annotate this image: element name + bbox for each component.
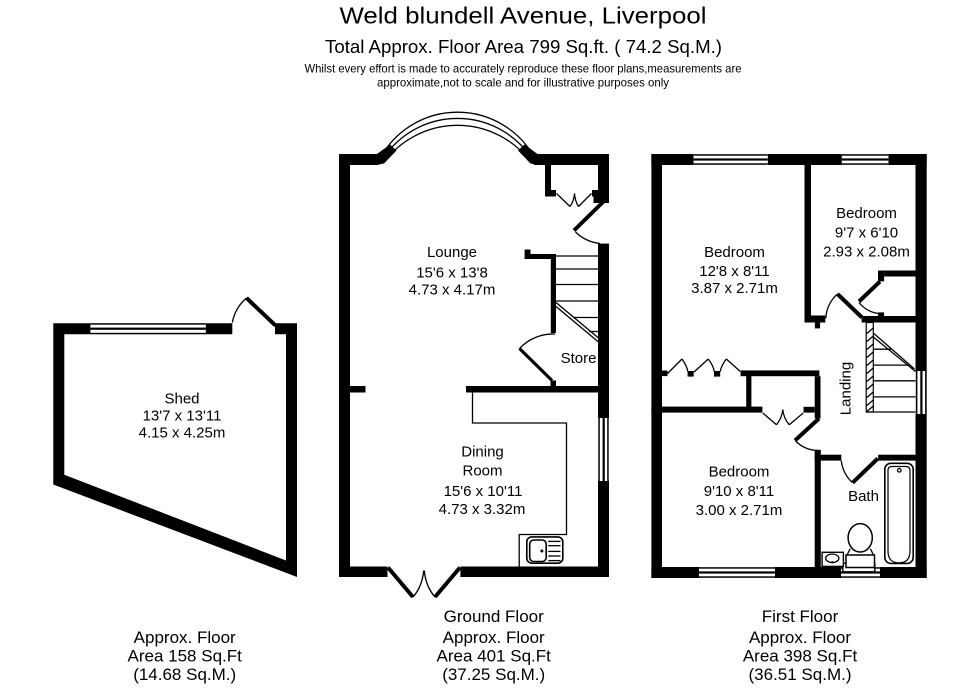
svg-text:2.93 x 2.08m: 2.93 x 2.08m <box>823 243 910 260</box>
svg-text:Approx. Floor: Approx. Floor <box>749 628 851 647</box>
svg-text:Bedroom: Bedroom <box>836 205 897 222</box>
svg-text:9'10 x 8'11: 9'10 x 8'11 <box>704 483 775 500</box>
svg-text:15'6 x 10'11: 15'6 x 10'11 <box>444 483 523 500</box>
svg-text:Lounge: Lounge <box>427 244 477 261</box>
svg-text:12'8 x 8'11: 12'8 x 8'11 <box>699 263 770 280</box>
svg-text:(14.68 Sq.M.): (14.68 Sq.M.) <box>133 665 236 684</box>
svg-text:13'7 x 13'11: 13'7 x 13'11 <box>143 408 222 425</box>
svg-text:Bedroom: Bedroom <box>704 244 765 261</box>
svg-text:4.15 x 4.25m: 4.15 x 4.25m <box>139 425 226 442</box>
svg-text:Landing: Landing <box>838 362 855 415</box>
svg-text:Approx. Floor: Approx. Floor <box>134 628 236 647</box>
svg-text:4.73 x 3.32m: 4.73 x 3.32m <box>439 501 526 518</box>
svg-text:Dining: Dining <box>461 443 504 460</box>
svg-text:Ground Floor: Ground Floor <box>444 607 544 626</box>
svg-text:Room: Room <box>462 463 502 480</box>
svg-text:Shed: Shed <box>164 390 199 407</box>
svg-text:4.73 x 4.17m: 4.73 x 4.17m <box>409 281 496 298</box>
svg-text:Total Approx. Floor Area 799 S: Total Approx. Floor Area 799 Sq.ft. ( 74… <box>325 36 722 57</box>
svg-text:3.00 x 2.71m: 3.00 x 2.71m <box>696 502 783 519</box>
svg-text:15'6 x 13'8: 15'6 x 13'8 <box>416 264 488 281</box>
svg-text:Approx. Floor: Approx. Floor <box>443 628 545 647</box>
svg-text:(37.25 Sq.M.): (37.25 Sq.M.) <box>442 665 545 684</box>
svg-text:Bedroom: Bedroom <box>709 464 770 481</box>
svg-text:First Floor: First Floor <box>762 607 839 626</box>
svg-text:Whilst every effort is made to: Whilst every effort is made to accuratel… <box>305 62 742 76</box>
svg-text:9'7 x 6'10: 9'7 x 6'10 <box>835 224 898 241</box>
svg-text:Area 398 Sq.Ft: Area 398 Sq.Ft <box>743 647 858 666</box>
svg-text:Area 401 Sq.Ft: Area 401 Sq.Ft <box>437 647 552 666</box>
svg-text:Store: Store <box>561 350 597 367</box>
svg-text:(36.51 Sq.M.): (36.51 Sq.M.) <box>749 665 852 684</box>
svg-text:Bath: Bath <box>848 488 879 505</box>
svg-text:Weld blundell Avenue, Liverpoo: Weld blundell Avenue, Liverpool <box>340 3 707 29</box>
svg-text:Area 158 Sq.Ft: Area 158 Sq.Ft <box>128 647 243 666</box>
svg-text:approximate,not to scale and f: approximate,not to scale and for illustr… <box>377 76 669 90</box>
svg-text:3.87 x 2.71m: 3.87 x 2.71m <box>691 280 778 297</box>
